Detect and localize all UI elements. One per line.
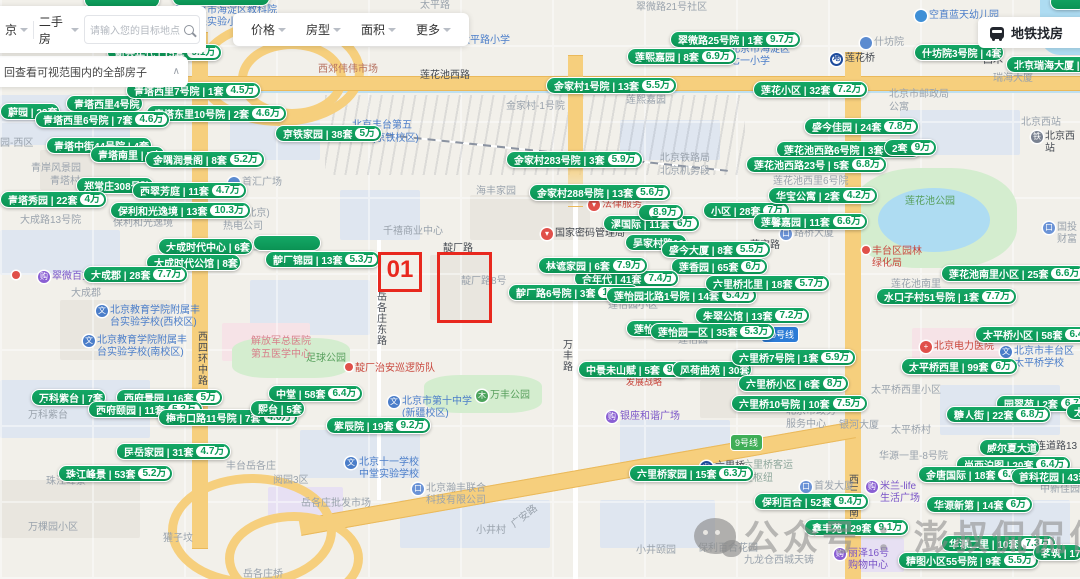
bubble-price: 5.5万 [642, 80, 674, 91]
poi-building-poi: 口国投财富 [1043, 222, 1080, 246]
filter-bar: 价格房型面积更多 [233, 13, 469, 46]
map-label: 华源一里-8号院 [879, 451, 948, 464]
bubble-price: 7.5万 [833, 398, 865, 409]
bubble-label: 翠微路25号院 | 1套 [678, 32, 763, 47]
poi-school-poi: 文北京教育学院附属丰 台实验学校(南校区) [83, 335, 187, 359]
bubble-label: 首科花园 | 43套 [1019, 469, 1080, 484]
map-label: 莲花池西路 [420, 70, 470, 83]
bubble-label: 威尔夏大道 [987, 440, 1037, 455]
bubble-label: 民岳家园 | 31套 [124, 444, 193, 459]
bubble-price: 6.9万 [702, 51, 734, 62]
map-label: 西郊伟伟市场 [318, 64, 378, 77]
listing-bubble[interactable]: 朱翠公馆 | 13套7.2万 [695, 307, 810, 324]
map-label: 中新佳园 [1040, 484, 1080, 497]
bubble-price: 6.4万 [328, 388, 360, 399]
bubble-label: 朱翠公馆 | 13套 [703, 308, 772, 323]
listing-bubble[interactable]: 2套9万 [884, 139, 937, 156]
poi-building-poi: 口首发大厦 [800, 481, 854, 493]
poi-school-poi: 文北京教育学院附属丰 台实验学校(西校区) [96, 305, 200, 329]
poi-text: 首发大厦 [814, 481, 854, 493]
bubble-label: 小区 | 28套 [711, 203, 760, 218]
bubble-price: 5.2万 [138, 468, 170, 479]
bubble-price: 5万 [196, 392, 220, 403]
school-icon: 文 [388, 396, 400, 408]
bubble-label: 六里桥10号院 | 10套 [739, 396, 830, 411]
bubble-price: 6万 [741, 261, 765, 272]
bubble-label: 盛今大厦 | 8套 [669, 242, 733, 257]
listing-bubble[interactable]: 太平桥西里 | 99套6万 [901, 358, 1018, 375]
dot-icon [12, 271, 20, 279]
map-label: 岳各庄东路 [373, 291, 386, 346]
poi-park-poi: 木万丰公园 [476, 390, 530, 402]
city-label: 京 [5, 21, 17, 38]
bubble-label: 莲怡园一区 | 35套 [658, 324, 737, 339]
filter-item-1[interactable]: 房型 [306, 21, 341, 38]
listing-bubble[interactable]: 莲熙嘉园 | 8套6.9万 [627, 48, 737, 65]
bubble-price: 7.7万 [982, 291, 1014, 302]
bubble-fragment [253, 235, 321, 251]
listing-bubble[interactable]: 中堂 | 58套6.4万 [268, 385, 363, 402]
poi-building-poi: 口北京瀚丰联合 科技有限公司 [412, 483, 486, 507]
listing-bubble[interactable]: 莲花小区 | 32套7.2万 [753, 81, 868, 98]
map-label: 獾子坟 [163, 533, 193, 546]
filter-item-2[interactable]: 面积 [361, 21, 396, 38]
bubble-fragment [1050, 0, 1080, 10]
bubble-price: 5万 [355, 128, 379, 139]
poi-subway-poi: 地莲花桥 [830, 53, 875, 66]
map-label: 阅园3区 [273, 475, 309, 488]
listing-bubble[interactable]: 靛厂锦园 | 13套5.3万 [265, 251, 380, 268]
bubble-price: 5.6万 [636, 187, 668, 198]
bubble-label: 莲花池西路23号 | 5套 [754, 157, 849, 172]
listing-bubble[interactable]: 青塔秀园 | 22套4万 [0, 191, 107, 208]
bubble-label: 糖人街 | 22套 [954, 407, 1013, 422]
bubble-label: 西翠芳庭 | 11套 [140, 183, 209, 198]
listing-bubble[interactable]: 威尔夏大道 [979, 439, 1040, 456]
bubble-label: 金家村288号院 | 13套 [537, 185, 633, 200]
subway-search-button[interactable]: 地铁找房 [978, 17, 1080, 48]
bubble-price: 6.8万 [852, 159, 884, 170]
bubble-label: 六里桥7号院 | 1套 [739, 350, 818, 365]
listing-bubble[interactable]: 大成时代中心 | 6套 [158, 238, 253, 255]
channel-label: 二手房 [39, 13, 68, 47]
listing-bubble[interactable]: 六里桥北里 | 18套5.7万 [705, 275, 830, 292]
filter-label: 更多 [416, 21, 440, 38]
bubble-price: 4.7万 [196, 446, 228, 457]
bubble-price: 7.2万 [775, 310, 807, 321]
filter-label: 房型 [306, 21, 330, 38]
bubble-price: 7.8万 [884, 121, 916, 132]
bubble-label: 京铁家园 | 38套 [283, 126, 352, 141]
bubble-price: 8万 [823, 378, 847, 389]
map-label: 小井颐园 [636, 545, 676, 558]
map-label: 发展战略 [626, 377, 662, 388]
bubble-price: 9.1万 [874, 522, 906, 533]
listing-bubble[interactable]: 首科花园 | 43套7万 [1011, 468, 1080, 485]
bubble-label: 鑫丰苑 | 29套 [812, 520, 871, 535]
bubble-label: 紫辰院 | 19套 [334, 418, 393, 433]
bubble-price: 4万 [80, 194, 104, 205]
bubble-label: 莲馨嘉园 | 11套 [761, 214, 830, 229]
listing-bubble[interactable]: 六里桥7号院 | 1套5.9万 [731, 349, 856, 366]
mall-icon: 购 [606, 411, 618, 423]
map-label: 莲花池公园 [905, 196, 955, 209]
bubble-label: 莲怡园北路1号院 | 14套 [614, 288, 719, 303]
bubble-price: 5.7万 [795, 278, 827, 289]
map-label: 北京西站 [1021, 117, 1061, 130]
mall-icon: 购 [866, 481, 878, 493]
bubble-price: 9万 [911, 142, 935, 153]
bubble-label: 茗筑 | 17 [1041, 545, 1080, 560]
bubble-label: 六里桥家园 | 15套 [637, 466, 716, 481]
map-label: 保利百合花园 [698, 543, 758, 556]
bubble-price: 8.9万 [649, 207, 681, 218]
mall-icon: 购 [834, 548, 846, 560]
bubble-label: 保利和光逸境 | 13套 [118, 203, 207, 218]
poi-text: 北京西站 [1045, 131, 1080, 155]
search-icon[interactable] [184, 25, 194, 35]
listing-bubble[interactable]: 华宝公寓 | 2套4.2万 [768, 187, 878, 204]
bubble-label: 金家村1号院 | 13套 [554, 78, 639, 93]
listing-bubble[interactable]: 保利和光逸境 | 13套10.3万 [110, 202, 251, 219]
building-icon: 口 [800, 481, 812, 493]
poi-text: 莲花桥 [845, 53, 875, 65]
bubble-label: 靛厂路6号院 | 3套 [516, 285, 595, 300]
listing-bubble[interactable]: 京铁家园 | 38套5万 [275, 125, 382, 142]
poi-school-poi: 文北京十一学校 中堂实验学校 [345, 457, 419, 481]
map-label: 翠微路21号社区 [636, 2, 707, 15]
bubble-price: 9.4万 [834, 496, 866, 507]
poi-text: 米兰-life 生活广场 [880, 481, 920, 505]
listing-bubble[interactable]: 六里桥小区 | 6套8万 [738, 375, 849, 392]
listing-bubble[interactable]: 金家村1号院 | 13套5.5万 [546, 77, 677, 94]
poi-dot-poi: 靛厂治安巡逻防队 [345, 363, 435, 375]
listing-bubble[interactable]: 林遮家园 | 6套7.9万 [538, 257, 648, 274]
bubble-price: 6.4万 [1065, 329, 1080, 340]
search-placeholder: 请输入您的目标地点 [90, 22, 180, 37]
bubble-price: 7.9万 [613, 260, 645, 271]
bubble-price: 6.8万 [1016, 409, 1048, 420]
poi-text: 北京教育学院附属丰 台实验学校(南校区) [97, 335, 187, 359]
bubble-label: 金家村283号院 | 3套 [514, 152, 605, 167]
poi-text: 丽泽16号 购物中心 [848, 548, 889, 572]
listing-bubble[interactable]: 珠江峰景 | 53套5.2万 [58, 465, 173, 482]
map-label: 青岸风景园 [31, 163, 81, 176]
bubble-price: 4.5万 [226, 85, 258, 96]
listing-bubble[interactable]: 盛今大厦 | 8套5.5万 [661, 241, 771, 258]
bubble-label: 中景未山赋 | 5套 [586, 362, 660, 377]
listing-bubble[interactable]: 莲馨嘉园 | 11套6.6万 [753, 213, 868, 230]
listing-bubble[interactable]: 水口子村51号院 | 1套7.7万 [876, 288, 1017, 305]
map-label: 银河大厦 [839, 420, 879, 433]
filter-item-3[interactable]: 更多 [416, 21, 451, 38]
bubble-price: 5.2万 [230, 154, 262, 165]
bubble-price: 4.6万 [252, 108, 284, 119]
dot-icon [345, 363, 353, 371]
bubble-label: 莲香园 | 65套 [679, 259, 738, 274]
search-panel: 京 二手房 请输入您的目标地点 [0, 6, 206, 53]
bubble-label: 大成时代中心 | 6套 [166, 239, 250, 254]
pin-icon: ▾ [541, 228, 553, 240]
bubble-label: 太 [1074, 404, 1080, 419]
bubble-price: 6.6万 [1051, 268, 1080, 279]
circle-icon [860, 37, 872, 49]
bubble-price: 9.7万 [766, 34, 798, 45]
bubble-label: 华源二里 | 10套 [949, 536, 1018, 551]
park-icon: 木 [476, 390, 488, 402]
listing-bubble[interactable]: 金家村288号院 | 13套5.6万 [529, 184, 671, 201]
chevron-up-icon[interactable]: ∧ [173, 66, 180, 77]
map-label: 瑞海大厦 [993, 73, 1033, 86]
bubble-price: 7.2万 [833, 84, 865, 95]
chevron-down-icon [71, 28, 79, 36]
poi-text: 丰台区园林 绿化局 [872, 246, 922, 270]
listing-bubble[interactable]: 莲怡园一区 | 35套5.3万 [650, 323, 775, 340]
poi-text: 国投财富 [1057, 222, 1080, 246]
bubble-label: 盛今佳园 | 24套 [812, 119, 881, 134]
map-label: 太平桥村 [891, 425, 931, 438]
bubble-label: 保利百合 | 52套 [762, 494, 831, 509]
bubble-label: 北京瑞海大厦 | 1套 [1014, 57, 1080, 72]
chevron-down-icon [20, 28, 28, 36]
bubble-label: 青塔西里6号院 | 7套 [43, 112, 132, 127]
school-icon: 文 [83, 335, 95, 347]
poi-text: 什坊院 [874, 37, 904, 49]
poi-dot-poi: 丰台区园林 绿化局 [862, 246, 922, 270]
poi-text: 北京教育学院附属丰 台实验学校(西校区) [110, 305, 200, 329]
listing-bubble[interactable]: 六里桥10号院 | 10套7.5万 [731, 395, 868, 412]
map-label: 丰台岳各庄 [226, 461, 276, 474]
line-badge: 9号线 [731, 435, 762, 450]
rail-icon: 铁 [1031, 131, 1043, 143]
map-label: 大成郡 [71, 288, 101, 301]
bubble-label: 靛厂锦园 | 13套 [273, 252, 342, 267]
bubble-label: 水口子村51号院 | 1套 [884, 289, 979, 304]
bubble-label: 大成郡 | 28套 [91, 267, 150, 282]
bubble-price: 5.5万 [736, 244, 768, 255]
map-label: 千禧商业中心 [383, 226, 443, 239]
map-label: 岳各庄批发市场 [301, 498, 371, 511]
school-icon: 文 [96, 305, 108, 317]
listing-bubble[interactable]: 莲花池南里小区 | 25套6.6万 [941, 265, 1080, 282]
bubble-price: 5.9万 [821, 352, 853, 363]
bubble-label: 青塔秀园 | 22套 [8, 192, 77, 207]
poi-mall-poi: 购银座和谐广场 [606, 411, 680, 423]
subway-icon [990, 27, 1004, 39]
bubble-price: 4.2万 [843, 190, 875, 201]
filter-label: 价格 [251, 21, 275, 38]
map-label: 北京市邮政局 公寓 [889, 89, 949, 114]
listing-bubble[interactable]: 盛今佳园 | 24套7.8万 [804, 118, 919, 135]
bubble-label: 华宝公寓 | 2套 [776, 188, 840, 203]
poi-text: 靛厂治安巡逻防队 [355, 363, 435, 375]
school-icon: 文 [1000, 346, 1012, 358]
bubble-label: 精图小区55号院 | 9套 [906, 553, 1001, 568]
bubble-label: 2套 [892, 140, 908, 155]
map-label: 万科紫台 [28, 410, 68, 423]
drop-icon [915, 10, 927, 22]
bubble-label: 莲花小区 | 32套 [761, 82, 830, 97]
map-label: 岳各庄桥 [243, 569, 283, 579]
bubble-label: 太平桥西里 | 99套 [909, 359, 988, 374]
listing-bubble[interactable]: 茗筑 | 17 [1033, 544, 1080, 561]
listing-bubble[interactable]: 熙台 | 5套 [250, 400, 305, 417]
bubble-label: 西府颐园 | 11套 [96, 402, 165, 417]
map-label: 海丰家园 [476, 186, 516, 199]
bubble-label: 金隅润景阁 | 8套 [153, 152, 227, 167]
poi-text: 北京十一学校 中堂实验学校 [359, 457, 419, 481]
bubble-label: 莲花池西路6号院 | 3套 [784, 142, 883, 157]
map-label: 足球公园 [306, 353, 346, 366]
map-label: 万棵园小区 [28, 522, 78, 535]
listing-bubble[interactable]: 翠微路25号院 | 1套9.7万 [670, 31, 801, 48]
listing-bubble[interactable]: 鑫丰苑 | 29套9.1万 [804, 519, 909, 536]
map-label: 太平路 [420, 0, 450, 13]
poi-dot-poi [12, 271, 20, 279]
map-label: 莲熙嘉园 [626, 95, 666, 108]
chevron-down-icon [278, 28, 286, 36]
hospital-icon: + [920, 341, 932, 353]
poi-circle-poi: 什坊院 [860, 37, 904, 49]
listing-bubble[interactable]: 糖人街 | 22套6.8万 [946, 406, 1051, 423]
bubble-label: 六里桥北里 | 18套 [713, 276, 792, 291]
bubble-price: 7.4万 [644, 273, 676, 284]
bubble-label: 金唐国际 | 18套 [926, 467, 995, 482]
bubble-label: 珠江峰景 | 53套 [66, 466, 135, 481]
map-label: 大成路13号院 [20, 215, 81, 228]
annotation-label: 01 [381, 255, 419, 285]
subway-icon: 地 [830, 53, 843, 66]
listing-bubble[interactable]: 8.9万 [638, 204, 684, 221]
dot-icon [862, 246, 870, 254]
bubble-label: 林遮家园 | 6套 [546, 258, 610, 273]
bubble-label: 中堂 | 58套 [276, 386, 325, 401]
view-all-notice[interactable]: 回查看可视范围内的全部房子 ∧ [0, 56, 188, 87]
search-input[interactable]: 请输入您的目标地点 [84, 15, 200, 44]
channel-selector[interactable]: 二手房 [34, 13, 84, 47]
listing-bubble[interactable]: 民岳家园 | 31套4.7万 [116, 443, 231, 460]
map-label: 金家村-1号院 [506, 101, 565, 114]
bubble-price: 5.3万 [345, 254, 377, 265]
poi-text: 银座和谐广场 [620, 411, 680, 423]
bubble-label: 莲花池南里小区 | 25套 [949, 266, 1048, 281]
listing-bubble[interactable]: 太 [1066, 403, 1080, 420]
bubble-price: 5.5万 [1004, 555, 1036, 566]
bubble-label: 太平桥小区 | 58套 [983, 327, 1062, 342]
bubble-price: 4.6万 [135, 114, 167, 125]
bubble-price: 4.7万 [212, 185, 244, 196]
chevron-down-icon [388, 28, 396, 36]
poi-text: 北京瀚丰联合 科技有限公司 [426, 483, 486, 507]
poi-text: 北京市丰台区 太平桥学校 [1014, 346, 1074, 370]
listing-bubble[interactable]: 青塔西里6号院 | 7套4.6万 [35, 111, 170, 128]
map-label: 西四环中路 [194, 331, 207, 386]
bubble-price: 10.3万 [210, 205, 247, 216]
poi-rail-poi: 铁北京西站 [1031, 131, 1080, 155]
bubble-price: 6.3万 [719, 468, 751, 479]
filter-label: 面积 [361, 21, 385, 38]
annotation-box-empty [437, 252, 492, 323]
map-label: 万丰路 [559, 339, 572, 372]
mall-icon: 购 [38, 271, 50, 283]
listing-bubble[interactable]: 北京瑞海大厦 | 1套 [1006, 56, 1080, 73]
bubble-label: 梅市口路11号院 | 7套 [166, 410, 261, 425]
map-label: 小井村 [476, 525, 506, 538]
chevron-down-icon [443, 28, 451, 36]
listing-bubble[interactable]: 太平桥小区 | 58套6.4万 [975, 326, 1080, 343]
subway-label: 地铁找房 [1011, 23, 1063, 42]
bubble-price: 5.9万 [608, 154, 640, 165]
listing-bubble[interactable]: 紫辰院 | 19套9.2万 [326, 417, 431, 434]
city-selector[interactable]: 京 [0, 21, 33, 38]
listing-bubble[interactable]: 西翠芳庭 | 11套4.7万 [132, 182, 247, 199]
building-icon: 口 [412, 483, 424, 495]
notice-text: 回查看可视范围内的全部房子 [4, 64, 169, 80]
bubble-price: 6万 [1006, 499, 1030, 510]
map-label: 保利和光逸境 [113, 218, 173, 231]
bubble-label: 青塔西里4号院 [74, 96, 140, 111]
listing-bubble[interactable]: 莲香园 | 65套6万 [671, 258, 768, 275]
map-label: 解放军总医院 第五医学中心 [251, 336, 311, 361]
bubble-price: 9.2万 [396, 420, 428, 431]
bubble-label: 华源新第 | 14套 [934, 497, 1003, 512]
chevron-down-icon [333, 28, 341, 36]
filter-item-0[interactable]: 价格 [251, 21, 286, 38]
bubble-label: 六里桥小区 | 6套 [746, 376, 820, 391]
listing-bubble[interactable]: 金家村283号院 | 3套5.9万 [506, 151, 643, 168]
bubble-label: 熙台 | 5套 [258, 401, 302, 416]
bubble-price: 7.7万 [153, 269, 185, 280]
map-label: 北京铁路局 北京机务段 [660, 153, 710, 178]
listing-bubble[interactable]: 华源新第 | 14套6万 [926, 496, 1033, 513]
bubble-label: 莲熙嘉园 | 8套 [635, 49, 699, 64]
poi-mall-poi: 购丽泽16号 购物中心 [834, 548, 889, 572]
listing-bubble[interactable]: 六里桥家园 | 15套6.3万 [629, 465, 754, 482]
poi-mall-poi: 购米兰-life 生活广场 [866, 481, 920, 505]
bubble-price: 6万 [991, 361, 1015, 372]
listing-bubble[interactable]: 大成郡 | 28套7.7万 [83, 266, 188, 283]
listing-bubble[interactable]: 莲花池西路23号 | 5套6.8万 [746, 156, 887, 173]
poi-text: 万丰公园 [490, 390, 530, 402]
bubble-price: 5.3万 [740, 326, 772, 337]
listing-bubble[interactable]: 金隅润景阁 | 8套5.2万 [145, 151, 265, 168]
school-icon: 文 [345, 457, 357, 469]
listing-bubble[interactable]: 精图小区55号院 | 9套5.5万 [898, 552, 1039, 569]
building-icon: 口 [1043, 222, 1055, 234]
bubble-price: 6.6万 [833, 216, 865, 227]
annotation-box-01: 01 [378, 252, 422, 292]
map-label: 园-西区 [0, 138, 33, 151]
poi-text: 首汇广场 [242, 177, 282, 189]
map-label: 九龙仓西城天铸 [744, 555, 814, 568]
map-label: 太平桥西里小区 [871, 385, 941, 398]
listing-bubble[interactable]: 保利百合 | 52套9.4万 [754, 493, 869, 510]
